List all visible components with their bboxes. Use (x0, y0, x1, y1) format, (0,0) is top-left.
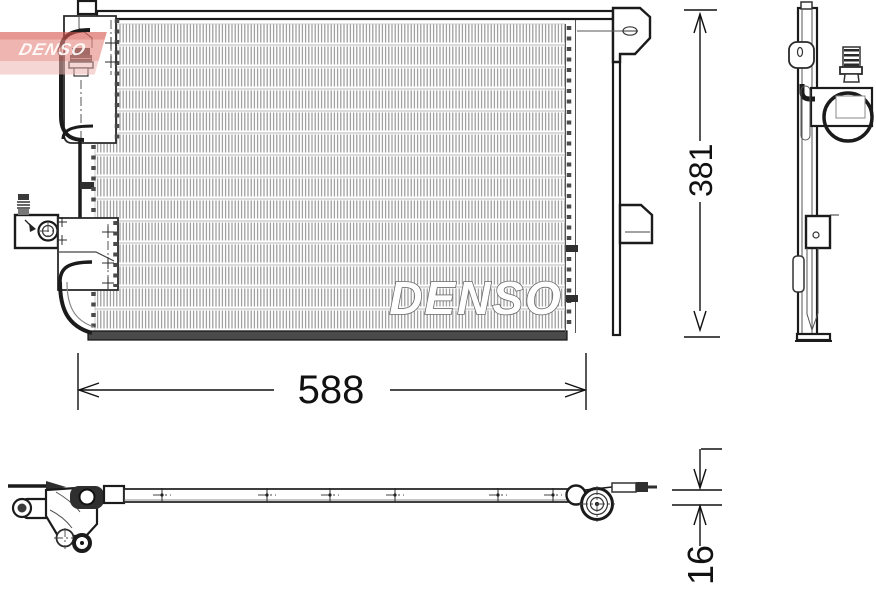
side-bracket (789, 42, 814, 68)
denso-logo-text: DENSO (17, 39, 89, 59)
dimension-depth-16: 16 (672, 449, 722, 585)
condenser-top-view (8, 481, 657, 551)
dim-width-label: 588 (298, 368, 365, 412)
dim-height-label: 381 (683, 144, 719, 197)
right-header-tank (566, 17, 621, 335)
dimension-height-381: 381 (683, 10, 720, 337)
condenser-drawing-canvas: DENSO DENSO (0, 0, 876, 589)
dim-depth-label: 16 (680, 545, 721, 585)
denso-watermark: DENSO (389, 272, 563, 324)
denso-logo: DENSO (0, 32, 107, 75)
condenser-front-view: DENSO (15, 1, 652, 340)
outlet-fitting (612, 482, 657, 492)
dimension-width-588: 588 (78, 353, 586, 412)
top-header-bar (97, 11, 613, 19)
technical-drawing-page: DENSO DENSO (0, 0, 876, 589)
mid-left-port-block (15, 194, 58, 248)
condenser-side-view (789, 2, 872, 341)
top-right-mounting-bracket (577, 8, 650, 62)
right-side-tab (620, 205, 652, 243)
bottom-header-bar (88, 331, 567, 340)
